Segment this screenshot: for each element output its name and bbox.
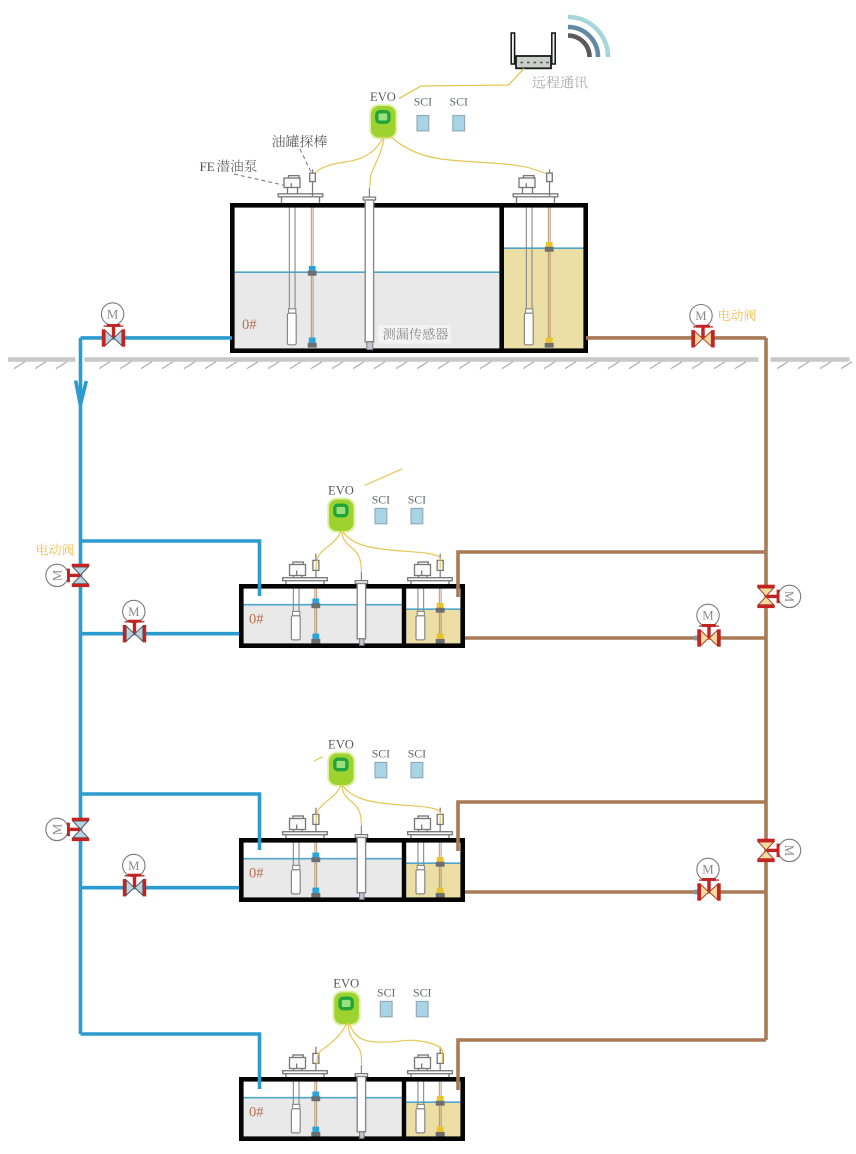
- svg-text:M: M: [702, 863, 713, 877]
- svg-text:M: M: [107, 307, 118, 321]
- svg-text:SCI: SCI: [450, 94, 468, 108]
- svg-text:0#: 0#: [249, 612, 264, 628]
- svg-text:M: M: [50, 570, 64, 581]
- svg-text:0#: 0#: [249, 866, 264, 882]
- svg-text:SCI: SCI: [408, 493, 426, 507]
- svg-text:M: M: [702, 609, 713, 623]
- svg-text:EVO: EVO: [328, 483, 354, 497]
- svg-text:M: M: [782, 845, 796, 856]
- svg-text:EVO: EVO: [333, 976, 359, 990]
- svg-text:SCI: SCI: [414, 94, 432, 108]
- svg-text:SCI: SCI: [413, 986, 431, 1000]
- svg-text:M: M: [695, 309, 706, 323]
- svg-text:SCI: SCI: [408, 747, 426, 761]
- svg-text:M: M: [782, 591, 796, 602]
- svg-text:SCI: SCI: [372, 747, 390, 761]
- svg-text:SCI: SCI: [377, 986, 395, 1000]
- svg-text:M: M: [128, 859, 139, 873]
- svg-text:M: M: [128, 605, 139, 619]
- svg-text:0#: 0#: [242, 317, 257, 333]
- svg-text:SCI: SCI: [372, 493, 390, 507]
- svg-text:0#: 0#: [249, 1105, 264, 1121]
- svg-text:M: M: [50, 824, 64, 835]
- svg-text:EVO: EVO: [328, 737, 354, 751]
- svg-text:FE: FE: [200, 159, 215, 174]
- svg-text:EVO: EVO: [370, 90, 396, 104]
